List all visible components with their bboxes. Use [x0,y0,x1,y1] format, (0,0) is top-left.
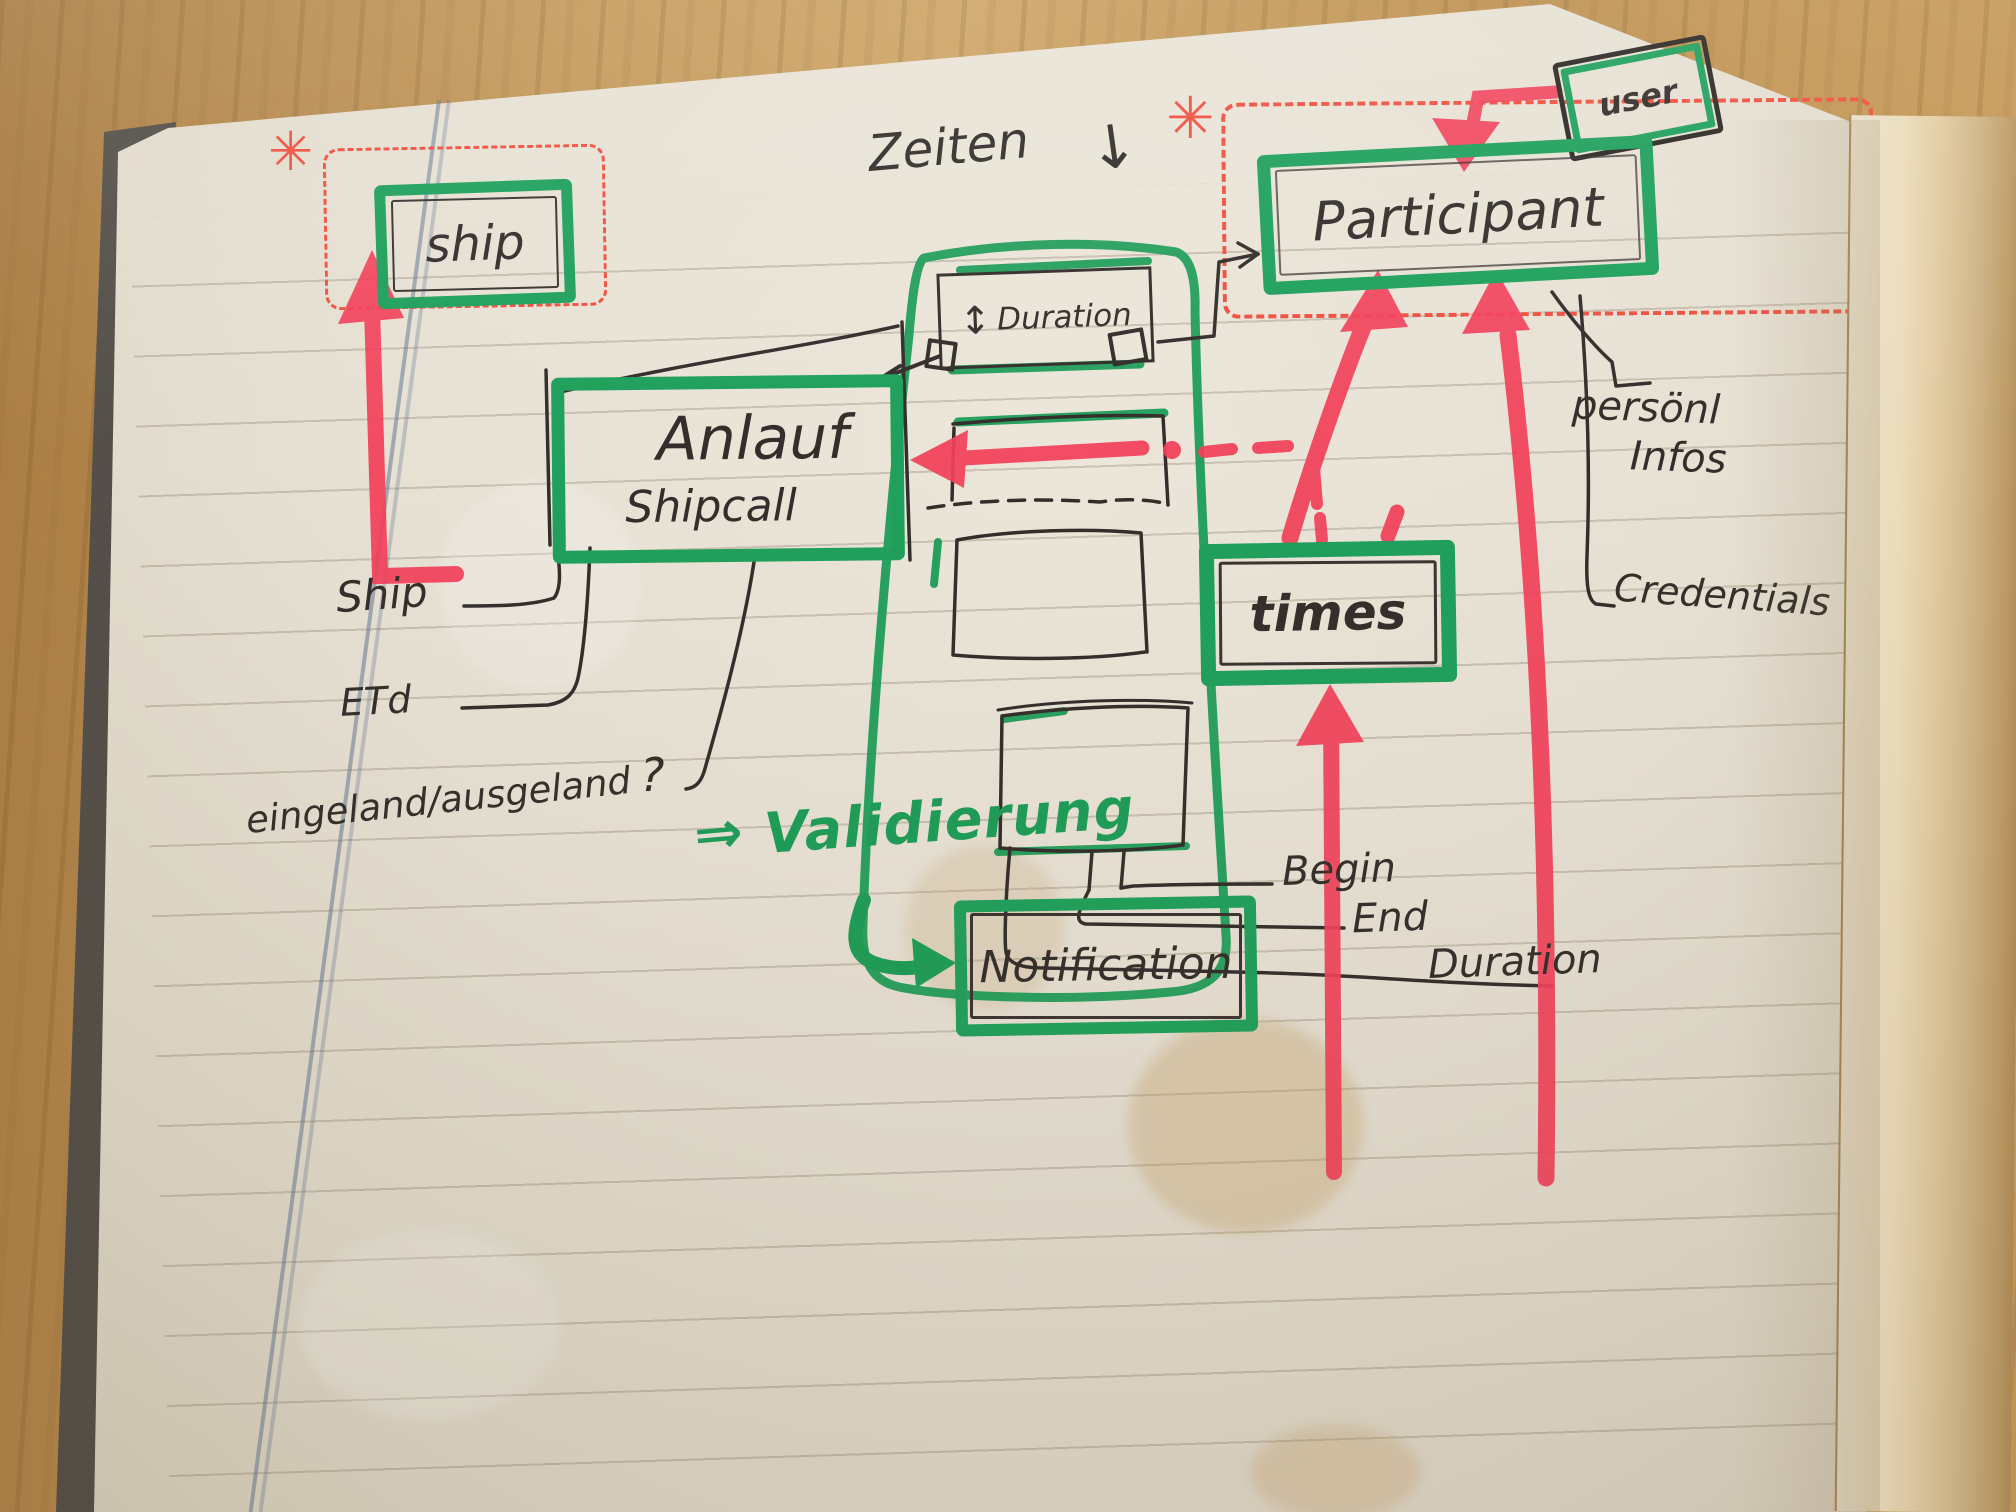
ship-attr-connector [464,544,560,606]
notebook-photo: ✳ ✳ [0,0,2016,1512]
sketch-box-a-dashed [928,500,1163,508]
page-curve-shadow [1730,120,1880,1512]
times-box: times [1199,540,1457,686]
infos-label: Infos [1629,436,1727,479]
down-arrow-icon: ↓ [1084,115,1142,181]
ship-box: ship [374,179,576,310]
anlauf-box-sublabel: Shipcall [625,484,797,530]
hand-drawn-strokes [0,0,2016,1512]
inout-question-mark: ? [640,752,664,798]
implies-arrow-icon: ⇒ [692,802,745,864]
times-to-participant-arrow [1290,315,1368,538]
zeiten-label: Zeiten [866,115,1031,179]
updown-arrow-icon: ↕ [959,301,992,340]
begin-attr-label: Begin [1281,848,1396,892]
etd-connector [462,548,590,708]
begin-connector [1121,884,1272,888]
end-attr-label: End [1351,897,1428,940]
notification-box-label: Notification [966,908,1246,1025]
participant-box: Participant [1257,135,1660,296]
personl-label: persönl [1571,385,1721,430]
etd-attr-label: ETd [339,680,412,722]
notification-to-participant-arrow [1508,335,1547,1178]
duration-box: ↕ Duration [936,266,1154,369]
bracket-ticks [1089,852,1124,890]
anlauf-box-label: Anlauf [656,408,848,470]
duration-to-participant-line [1158,254,1258,342]
notification-box: Notification [954,895,1258,1036]
credentials-connector [1580,296,1614,606]
duration-attr-label: Duration [1427,939,1602,985]
anlauf-to-ship-arrow [372,308,456,576]
personl-connector [1552,292,1650,386]
times-box-label: times [1214,555,1442,671]
ship-attr-label: Ship [335,571,429,619]
duration-box-label: Duration [997,299,1133,335]
anlauf-box: Anlauf Shipcall [551,374,905,564]
notification-to-times-arrow [1331,712,1334,1172]
sketch-box-b [953,530,1147,658]
inout-connector [686,562,754,789]
